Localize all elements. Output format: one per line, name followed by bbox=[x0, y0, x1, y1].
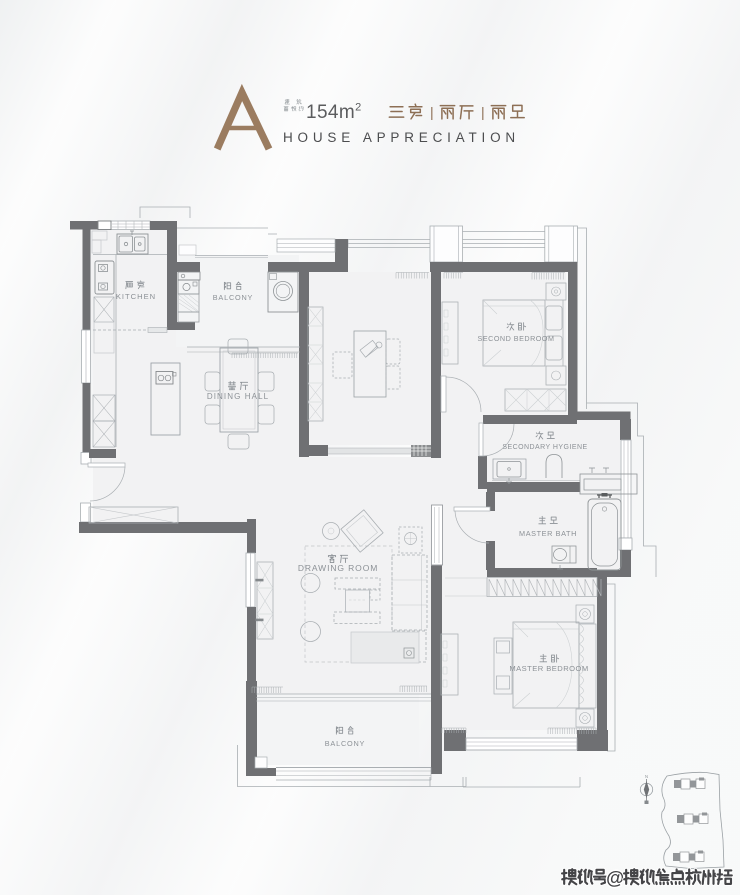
svg-text:DINING HALL: DINING HALL bbox=[207, 392, 269, 401]
svg-text:BALCONY: BALCONY bbox=[325, 739, 365, 748]
svg-text:SECOND BEDROOM: SECOND BEDROOM bbox=[478, 334, 555, 343]
svg-text:@: @ bbox=[606, 867, 624, 888]
svg-text:BALCONY: BALCONY bbox=[213, 293, 253, 302]
svg-text:MASTER BEDROOM: MASTER BEDROOM bbox=[509, 664, 588, 673]
svg-text:N: N bbox=[645, 774, 648, 779]
svg-text:|: | bbox=[430, 104, 434, 120]
svg-text:MASTER BATH: MASTER BATH bbox=[519, 529, 577, 538]
svg-text:DRAWING ROOM: DRAWING ROOM bbox=[298, 563, 378, 573]
svg-text:|: | bbox=[481, 104, 485, 120]
svg-text:KITCHEN: KITCHEN bbox=[116, 292, 156, 301]
svg-text:HOUSE APPRECIATION: HOUSE APPRECIATION bbox=[283, 130, 520, 145]
svg-text:SECONDARY HYGIENE: SECONDARY HYGIENE bbox=[502, 444, 587, 451]
svg-text:154m2: 154m2 bbox=[306, 102, 362, 124]
